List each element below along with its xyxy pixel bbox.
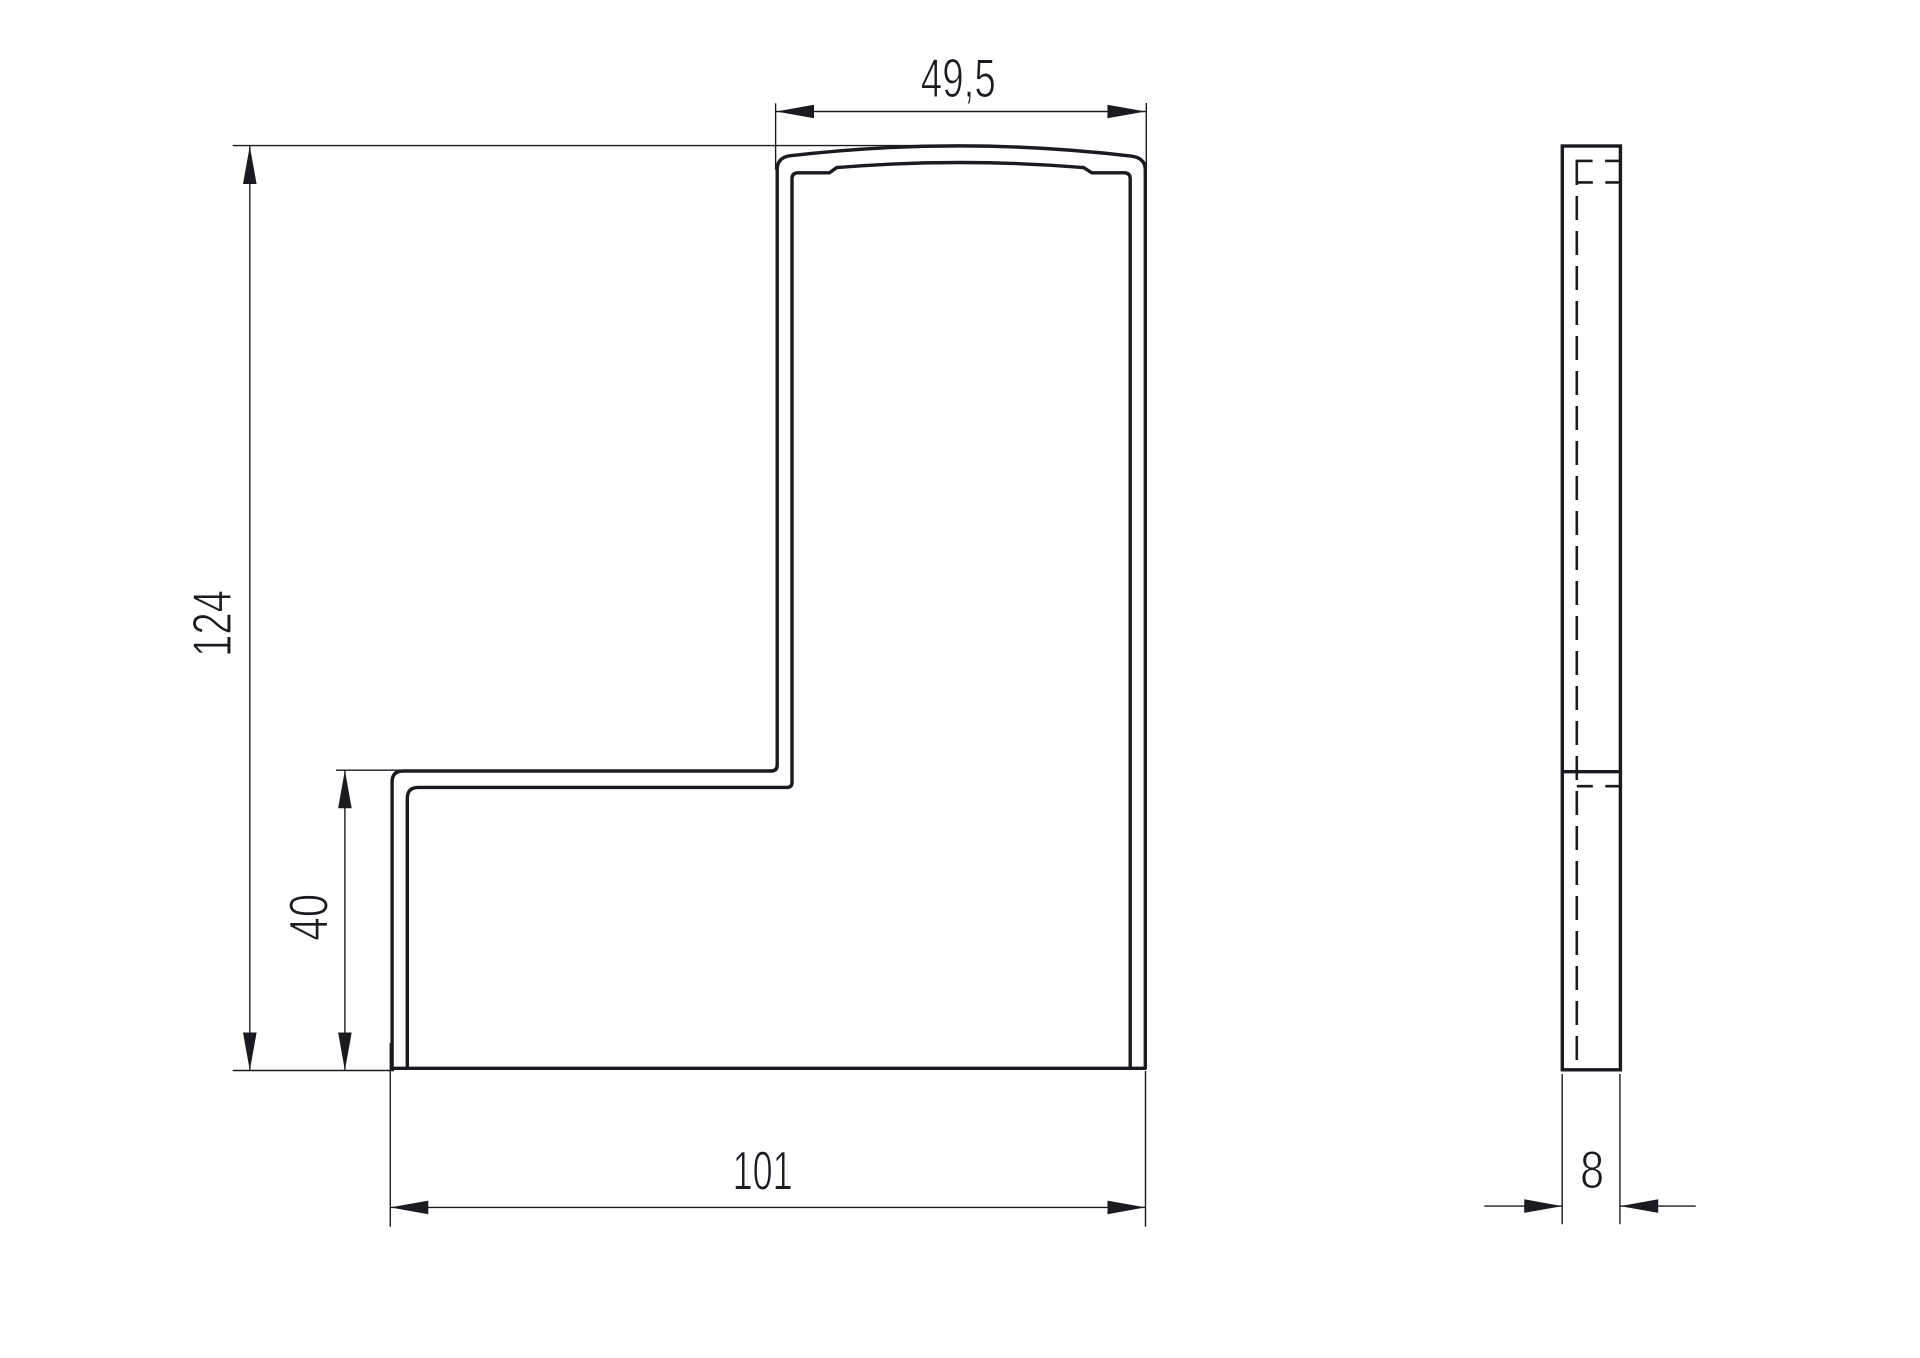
svg-text:124: 124 [181,590,243,657]
svg-text:8: 8 [1580,1141,1604,1200]
svg-text:40: 40 [277,894,339,941]
svg-text:101: 101 [733,1139,793,1201]
svg-text:49,5: 49,5 [921,47,996,109]
